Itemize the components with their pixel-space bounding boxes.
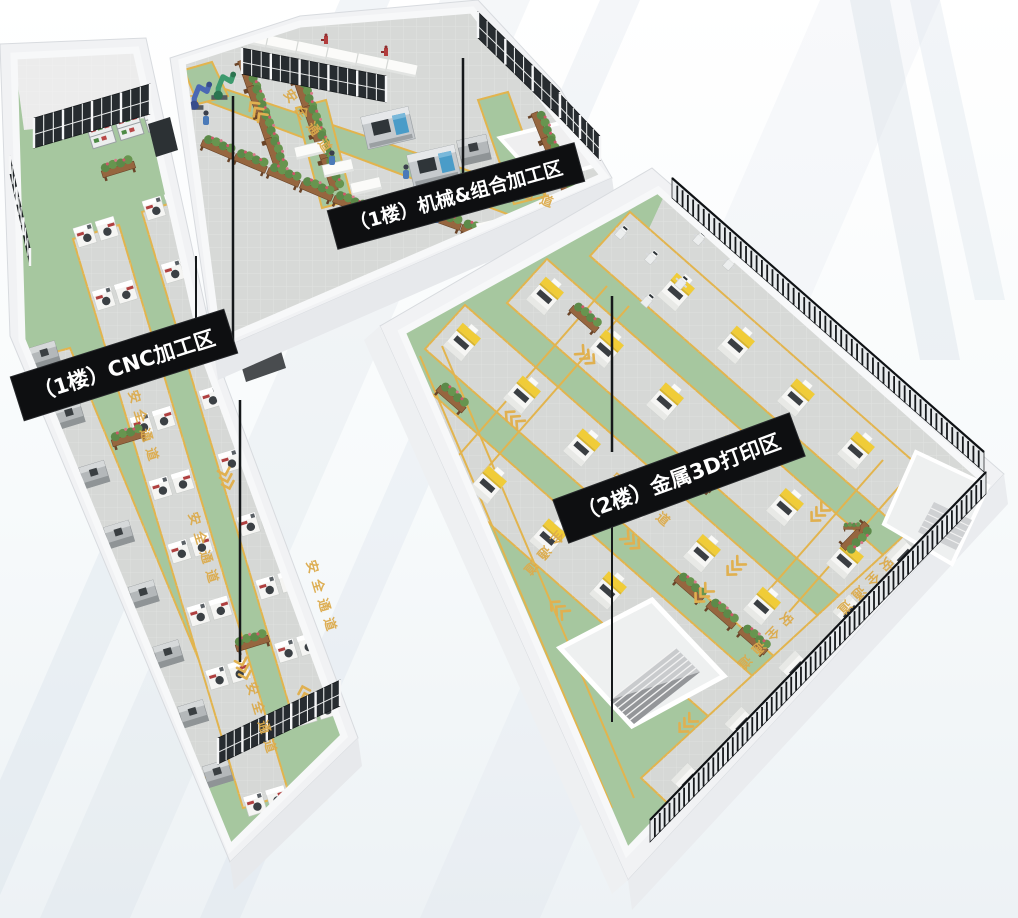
worker-icon xyxy=(203,110,209,125)
factory-overview-render: 安全通道 安全通道 安全通道 安全通道 安全通道 安全通道 安全通道 安全通道 … xyxy=(0,0,1018,918)
factory-scene-svg: 安全通道 安全通道 安全通道 安全通道 安全通道 安全通道 安全通道 安全通道 … xyxy=(0,0,1018,918)
worker-icon xyxy=(403,164,409,179)
